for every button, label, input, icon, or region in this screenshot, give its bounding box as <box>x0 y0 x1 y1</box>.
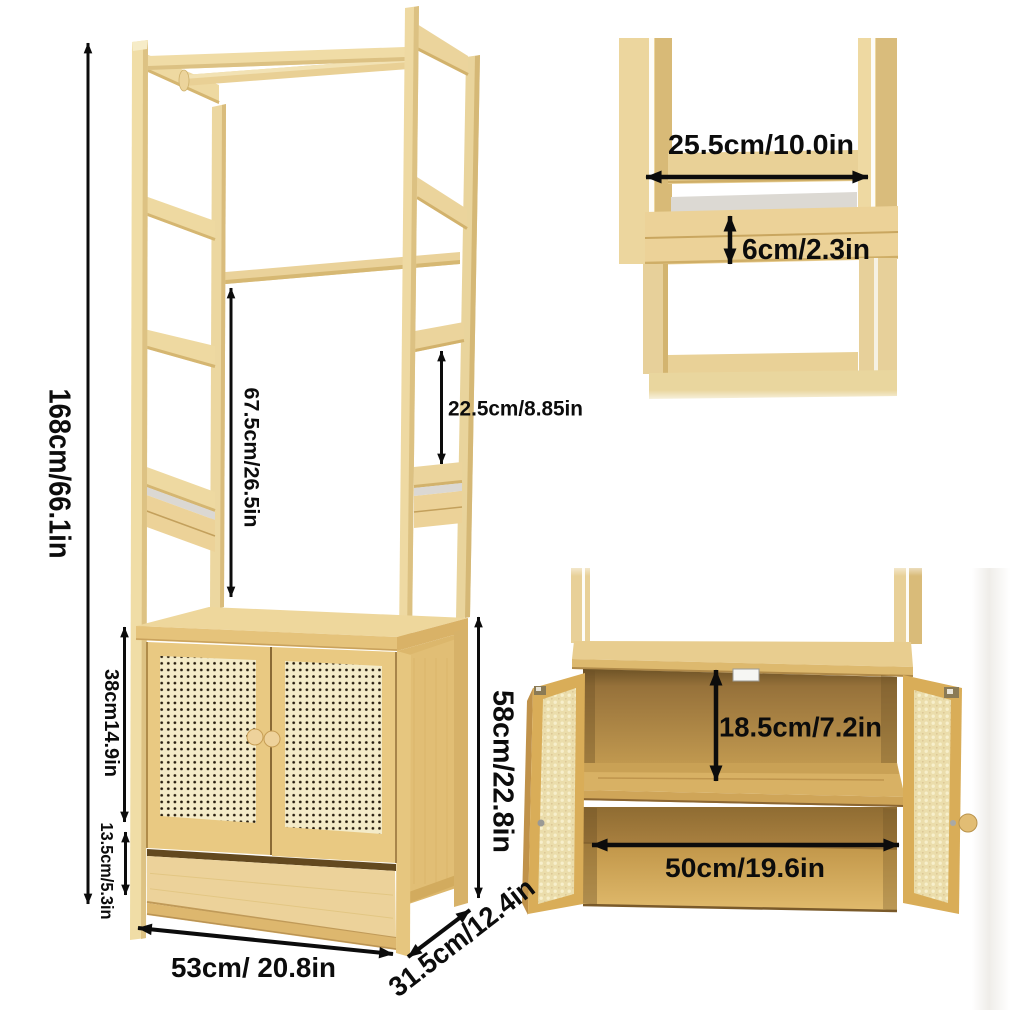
svg-text:58cm/22.8in: 58cm/22.8in <box>487 690 519 853</box>
svg-text:53cm/ 20.8in: 53cm/ 20.8in <box>171 952 336 983</box>
svg-text:67.5cm/26.5in: 67.5cm/26.5in <box>240 388 264 528</box>
svg-text:50cm/19.6in: 50cm/19.6in <box>665 853 825 883</box>
svg-text:22.5cm/8.85in: 22.5cm/8.85in <box>448 397 583 421</box>
svg-text:38cm14.9in: 38cm14.9in <box>100 669 122 777</box>
svg-text:18.5cm/7.2in: 18.5cm/7.2in <box>719 712 882 743</box>
svg-text:13.5cm/5.3in: 13.5cm/5.3in <box>97 823 117 920</box>
svg-text:168cm/66.1in: 168cm/66.1in <box>43 389 78 559</box>
svg-text:25.5cm/10.0in: 25.5cm/10.0in <box>668 129 854 160</box>
svg-text:6cm/2.3in: 6cm/2.3in <box>742 234 870 266</box>
